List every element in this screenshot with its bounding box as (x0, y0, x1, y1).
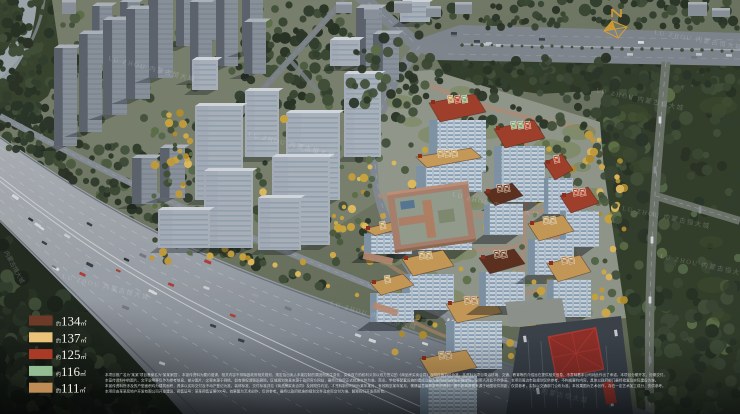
svg-text:本项目由某某房地产开发有限公司开发建设，预售证号：某某预售证: 本项目由某某房地产开发有限公司开发建设，预售证号：某某预售证第000号。效果图为… (105, 388, 388, 393)
svg-text:本宣传资料所涉及的户型面积均为建筑面积，具体以实际交付及不动: 本宣传资料所涉及的户型面积均为建筑面积，具体以实际交付及不动产登记为准。装修标准… (105, 383, 666, 388)
svg-text:本项目推广名为"某某"项目备案名为"某某家园"。本宣传资料为: 本项目推广名为"某某"项目备案名为"某某家园"。本宣传资料为要约邀请，相关内容不… (105, 372, 667, 377)
svg-text:本宣传资料中的图片、文字说明等仅作为参考信息，部分图片、文案: 本宣传资料中的图片、文字说明等仅作为参考信息，部分图片、文案来源于网络，如有侵权… (105, 377, 658, 382)
